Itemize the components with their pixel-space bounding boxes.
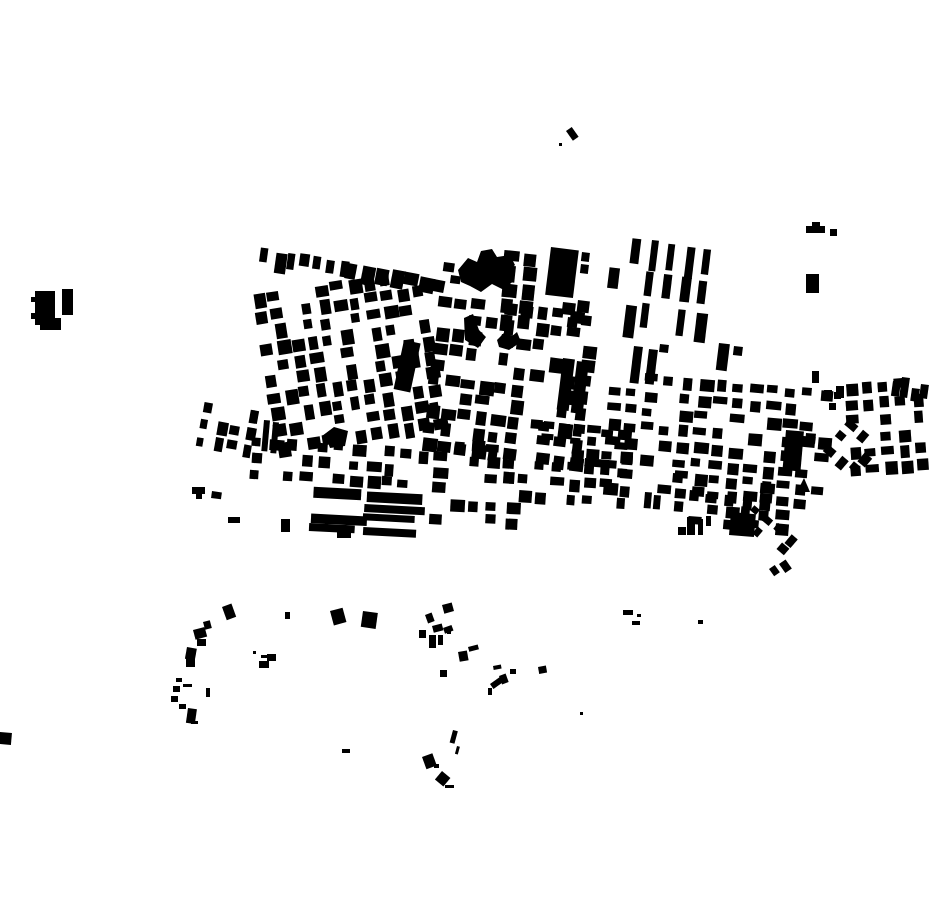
building [511, 385, 524, 399]
building [294, 355, 306, 369]
building [299, 253, 311, 267]
building [553, 436, 566, 447]
building [824, 390, 832, 398]
building [361, 611, 378, 629]
building [880, 431, 891, 440]
building [436, 327, 451, 342]
building [753, 520, 759, 528]
building [430, 359, 445, 372]
building [536, 323, 550, 338]
building [701, 249, 711, 275]
building [445, 785, 454, 788]
building [316, 383, 327, 398]
building [460, 379, 475, 390]
building [626, 388, 636, 396]
building [454, 442, 464, 453]
building [292, 339, 307, 353]
building [298, 386, 310, 398]
building [485, 502, 495, 511]
building [607, 402, 621, 411]
building [315, 285, 330, 298]
building [432, 623, 443, 632]
building [829, 403, 836, 410]
building-cluster-grid-upper-left [251, 267, 450, 459]
building [846, 400, 859, 411]
building [782, 418, 798, 428]
building [285, 389, 300, 406]
building [521, 284, 535, 301]
building [445, 374, 461, 387]
building [318, 443, 328, 453]
building [712, 428, 723, 439]
building [404, 423, 415, 439]
building [692, 486, 705, 497]
building [253, 651, 256, 654]
building [629, 238, 641, 264]
building [325, 260, 335, 274]
building [679, 410, 694, 423]
building [534, 461, 544, 470]
building [775, 509, 790, 520]
building [683, 378, 693, 391]
building [785, 388, 795, 397]
building [457, 408, 471, 419]
building [259, 248, 268, 263]
building [834, 456, 848, 471]
building [352, 444, 367, 457]
building [503, 472, 515, 485]
building [802, 387, 812, 396]
building [894, 396, 905, 406]
building [566, 326, 580, 337]
building [375, 360, 386, 372]
building [296, 369, 310, 382]
building [625, 404, 637, 414]
building [566, 127, 579, 141]
building [530, 419, 543, 429]
building [370, 426, 383, 440]
building [584, 478, 596, 489]
building [599, 478, 612, 487]
building [698, 396, 712, 409]
building [191, 721, 198, 724]
building [384, 446, 395, 457]
building [574, 424, 586, 434]
building [226, 439, 238, 450]
building [708, 460, 722, 470]
building [806, 226, 825, 233]
building [412, 386, 424, 400]
building [785, 403, 796, 415]
building [622, 305, 637, 339]
building [566, 495, 575, 506]
building [742, 476, 753, 484]
building [551, 462, 561, 472]
building [640, 303, 650, 328]
building [277, 359, 289, 370]
building [449, 344, 463, 357]
building [379, 372, 393, 387]
building [350, 313, 360, 323]
building [337, 532, 351, 538]
building [608, 418, 621, 431]
building [750, 401, 761, 413]
building [629, 346, 642, 384]
building [643, 271, 653, 296]
building [510, 400, 524, 416]
building [350, 396, 360, 410]
building [623, 610, 633, 615]
building [173, 686, 180, 692]
building [601, 429, 613, 438]
building [472, 428, 485, 442]
building [580, 712, 583, 715]
building [203, 402, 213, 414]
building [640, 455, 654, 467]
building [206, 688, 210, 697]
building [743, 491, 758, 502]
building [504, 432, 517, 444]
building [675, 309, 685, 336]
building [513, 368, 525, 381]
building [581, 252, 590, 262]
building [567, 462, 576, 470]
building [506, 502, 521, 514]
building [443, 262, 455, 272]
building [303, 319, 313, 330]
building [455, 746, 460, 755]
building [253, 293, 267, 309]
building [271, 406, 287, 421]
building [255, 311, 268, 325]
building [535, 492, 547, 504]
building [891, 381, 901, 397]
building [698, 519, 703, 535]
building [767, 418, 783, 431]
building [499, 314, 512, 331]
building [732, 384, 743, 393]
building-cluster-band-left-rows [249, 436, 450, 494]
building [571, 450, 584, 463]
building [642, 408, 652, 416]
building [641, 421, 654, 430]
building [877, 382, 887, 392]
building [438, 635, 443, 645]
building [769, 565, 780, 576]
building [679, 394, 689, 404]
building-cluster-south-center-bits [429, 498, 521, 530]
building [493, 665, 502, 670]
building [228, 517, 240, 523]
building [348, 278, 363, 294]
building [609, 387, 621, 396]
building [543, 421, 554, 429]
building [900, 445, 910, 458]
building [447, 631, 451, 634]
building [301, 303, 311, 315]
building [330, 608, 346, 626]
building [518, 490, 532, 503]
building [350, 476, 364, 488]
building [367, 476, 381, 490]
building-cluster-rowhouses [601, 235, 716, 347]
building [601, 451, 612, 460]
building [429, 514, 442, 525]
building [776, 496, 789, 506]
building [614, 442, 628, 450]
building [750, 384, 764, 394]
building [663, 376, 673, 386]
building [329, 280, 343, 291]
building [698, 620, 703, 624]
building [450, 499, 465, 512]
building [197, 639, 206, 646]
building [435, 771, 450, 786]
building [658, 426, 668, 436]
building [880, 414, 891, 425]
building [733, 346, 743, 356]
building [616, 498, 625, 509]
building [727, 491, 737, 504]
building [678, 527, 686, 535]
building [507, 417, 519, 430]
building [587, 436, 596, 446]
building [706, 516, 711, 526]
building [762, 467, 774, 480]
building [270, 307, 284, 319]
building [433, 451, 447, 461]
building [517, 315, 530, 329]
building [319, 299, 331, 315]
building [313, 487, 361, 501]
building [658, 440, 672, 452]
building [485, 514, 496, 524]
building [799, 422, 813, 432]
building [475, 395, 490, 405]
building [314, 366, 328, 382]
building [674, 488, 686, 499]
building [485, 317, 498, 329]
building [510, 669, 516, 674]
building [432, 279, 446, 293]
building [387, 423, 399, 439]
building [716, 343, 730, 371]
building [729, 414, 744, 424]
building [783, 430, 804, 471]
building [196, 494, 202, 499]
building [440, 670, 447, 677]
building [267, 393, 282, 405]
building [382, 392, 395, 408]
building [607, 267, 620, 289]
building [538, 666, 547, 674]
building [349, 298, 359, 311]
building [346, 379, 358, 391]
building [618, 430, 633, 441]
building [441, 408, 457, 420]
building [784, 534, 797, 548]
building [767, 385, 778, 394]
building [375, 343, 391, 359]
building [708, 475, 719, 484]
building [309, 351, 325, 364]
building [879, 396, 889, 408]
west-isolated-block [35, 291, 61, 330]
building [471, 298, 486, 310]
building [793, 499, 806, 510]
building [349, 461, 358, 470]
building [422, 437, 438, 452]
building [428, 384, 442, 398]
building [385, 324, 395, 335]
building [728, 448, 743, 460]
building [259, 343, 273, 356]
building [450, 275, 461, 284]
building-cluster-scatter-west-edge [195, 401, 260, 458]
building [440, 423, 451, 437]
building [229, 425, 240, 436]
building [450, 730, 458, 744]
building [304, 404, 316, 420]
building [412, 285, 423, 297]
building [275, 323, 288, 340]
building [438, 296, 453, 308]
building [393, 274, 404, 284]
building [432, 481, 446, 493]
building [281, 519, 290, 532]
building [285, 612, 290, 619]
building [834, 392, 841, 399]
building [286, 439, 297, 451]
building [425, 613, 435, 624]
building [559, 423, 570, 433]
building [366, 309, 381, 320]
building [179, 704, 186, 709]
building [678, 424, 688, 437]
building [419, 319, 431, 334]
building [259, 661, 269, 668]
individual-buildings [0, 127, 929, 788]
building [459, 393, 472, 406]
building [384, 305, 400, 320]
building [332, 381, 344, 397]
building [274, 253, 288, 275]
building [364, 504, 425, 515]
building [332, 474, 344, 484]
building [400, 449, 412, 459]
building [171, 696, 178, 702]
building [713, 396, 728, 405]
building [617, 468, 627, 478]
building [899, 430, 912, 443]
building [727, 463, 739, 475]
building [383, 409, 396, 422]
building [363, 379, 376, 394]
building [743, 464, 758, 473]
building [901, 461, 914, 475]
building [419, 630, 426, 638]
building [665, 244, 675, 271]
building [529, 369, 545, 382]
building [454, 299, 467, 310]
building [283, 471, 293, 481]
building [567, 317, 578, 328]
building [692, 427, 706, 435]
building [498, 352, 508, 365]
building [550, 477, 565, 486]
building [249, 410, 260, 424]
building [363, 513, 415, 523]
building [299, 471, 313, 481]
building [694, 410, 708, 418]
building [503, 448, 517, 461]
building [465, 348, 476, 361]
building [267, 654, 276, 661]
building [693, 313, 708, 343]
building [468, 644, 479, 651]
building [619, 486, 630, 498]
building [532, 338, 544, 350]
building [644, 492, 652, 509]
building [586, 449, 600, 460]
building [759, 493, 772, 504]
building [334, 414, 345, 424]
building [581, 315, 592, 326]
building [428, 374, 439, 385]
building [31, 313, 35, 319]
building-cluster-arc-west [258, 248, 350, 284]
building [0, 732, 12, 745]
building [322, 335, 332, 346]
building [479, 381, 495, 397]
building [199, 419, 208, 430]
building [732, 398, 743, 409]
building [812, 222, 820, 226]
building [277, 339, 293, 355]
building [62, 289, 73, 315]
building [569, 479, 580, 492]
building [637, 614, 641, 617]
building [717, 380, 727, 392]
building [475, 411, 487, 426]
building [312, 256, 321, 270]
building [308, 336, 319, 350]
building [196, 437, 204, 447]
building [687, 517, 695, 535]
building [367, 491, 423, 504]
building [193, 627, 207, 640]
building [488, 688, 492, 695]
building [211, 491, 222, 499]
building [216, 421, 229, 436]
building [426, 404, 441, 419]
building [320, 318, 331, 330]
building [648, 240, 659, 272]
building [620, 451, 633, 464]
building [917, 458, 929, 470]
building [519, 300, 534, 315]
building [468, 501, 478, 512]
building [505, 518, 517, 530]
building [486, 444, 499, 453]
building [346, 364, 358, 380]
building [333, 299, 348, 312]
building [761, 481, 771, 493]
building [862, 382, 872, 394]
building [340, 329, 355, 346]
building [580, 264, 589, 274]
building [659, 344, 669, 353]
